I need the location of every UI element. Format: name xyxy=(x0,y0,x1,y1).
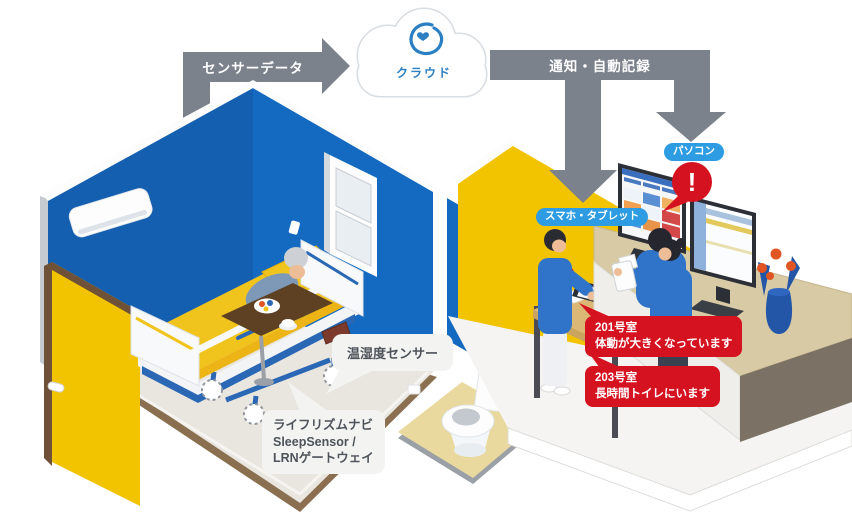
callout-device-line: ライフリズムナビ xyxy=(273,417,374,434)
exclamation-text: ! xyxy=(672,162,712,202)
alert-room: 203号室 xyxy=(595,371,710,387)
badge-pc: パソコン xyxy=(664,143,724,161)
callout-device: ライフリズムナビ SleepSensor / LRNゲートウェイ xyxy=(262,410,385,474)
alert-bubble-room-201: 201号室 体動が大きくなっています xyxy=(585,316,742,357)
alert-bubble-room-203: 203号室 長時間トイレにいます xyxy=(585,366,720,407)
cloud-icon xyxy=(358,9,486,96)
callout-device-line: SleepSensor / xyxy=(273,434,374,451)
arrow-label-notify: 通知・自動記録 xyxy=(490,50,710,80)
alert-room: 201号室 xyxy=(595,321,732,337)
badge-smartphone-tablet: スマホ・タブレット xyxy=(536,208,648,226)
callout-device-line: LRNゲートウェイ xyxy=(273,450,374,467)
alert-message: 体動が大きくなっています xyxy=(595,337,732,353)
arrow-label-sensor-data: センサーデータ xyxy=(183,52,323,82)
care-monitoring-diagram: センサーデータ 通知・自動記録 クラウド パソコン スマホ・タブレット ! 温湿… xyxy=(0,0,852,527)
toilet-sensor-icon xyxy=(408,385,420,394)
alert-message: 長時間トイレにいます xyxy=(595,387,710,403)
cloud-label: クラウド xyxy=(382,64,466,81)
callout-temp-humidity-sensor: 温湿度センサー xyxy=(332,334,453,371)
